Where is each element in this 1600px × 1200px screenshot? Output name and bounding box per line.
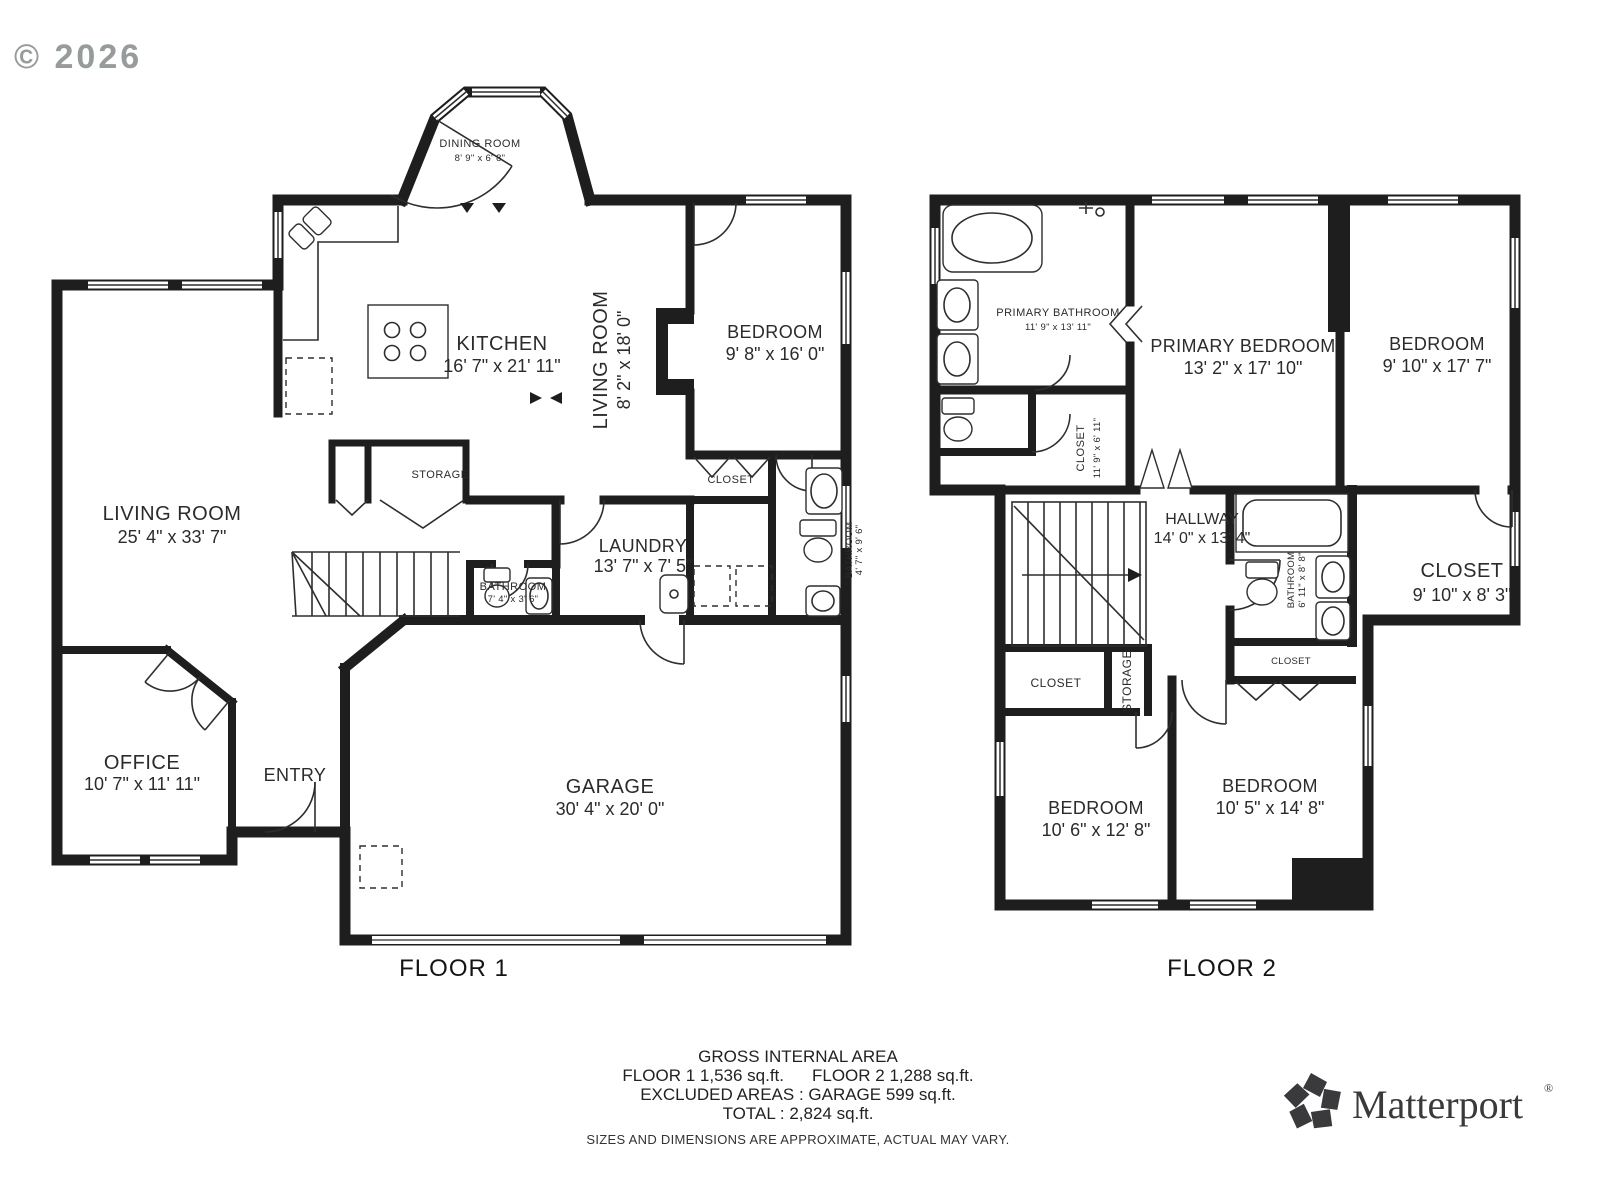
room-dims-garage: 30' 4" x 20' 0" xyxy=(556,799,665,819)
room-label-closet-small: CLOSET xyxy=(1271,656,1311,667)
room-label-closet: CLOSET xyxy=(707,474,754,486)
copyright-text: © 2026 xyxy=(14,38,142,76)
floor2-plan: PRIMARY BATHROOM 11' 9" x 13' 11" PRIMAR… xyxy=(935,200,1515,905)
room-label-living: LIVING ROOM xyxy=(103,503,242,525)
toilet-icon xyxy=(1247,579,1277,605)
kitchen-island xyxy=(368,305,448,378)
room-label-closet-primary: CLOSET xyxy=(1075,424,1087,471)
total-area: TOTAL : 2,824 sq.ft. xyxy=(723,1104,874,1123)
bathtub-icon xyxy=(1236,494,1348,552)
french-door-icon xyxy=(1168,450,1192,488)
refrigerator-icon xyxy=(286,358,332,414)
floor2-area: FLOOR 2 1,288 sq.ft. xyxy=(812,1066,974,1085)
room-dims-living-small: 8' 2" x 18' 0" xyxy=(614,311,634,410)
room-label-bedroom: BEDROOM xyxy=(727,322,823,342)
room-dims-bedroom: 9' 8" x 16' 0" xyxy=(726,344,825,364)
room-dims-primary-bathroom: 11' 9" x 13' 11" xyxy=(1025,322,1091,333)
matterport-wordmark: Matterport xyxy=(1352,1082,1523,1127)
kitchen-sink-icon xyxy=(287,205,332,250)
room-label-entry: ENTRY xyxy=(264,765,327,785)
room-label-garage: GARAGE xyxy=(566,776,655,798)
floor2-caption: FLOOR 2 xyxy=(1167,955,1277,982)
room-dims-living: 25' 4" x 33' 7" xyxy=(118,527,227,547)
room-dims-closet-primary: 11' 9" x 6' 11" xyxy=(1092,418,1103,478)
floor1-plan: DINING ROOM 8' 9" x 6' 8" KITCHEN 16' 7"… xyxy=(52,92,865,940)
room-dims-bedroom-right: 9' 10" x 17' 7" xyxy=(1383,356,1492,376)
floor1-area: FLOOR 1 1,536 sq.ft. xyxy=(622,1066,784,1085)
room-dims-bathroom2: 6' 11" x 8' 8" xyxy=(1297,552,1308,608)
room-label-hallway: HALLWAY xyxy=(1165,511,1239,528)
floor1-fixtures xyxy=(283,205,842,888)
room-dims-kitchen: 16' 7" x 21' 11" xyxy=(443,356,560,376)
room-dims-bedroom-left: 10' 6" x 12' 8" xyxy=(1042,820,1151,840)
toilet-icon xyxy=(944,417,972,441)
excluded-areas: EXCLUDED AREAS : GARAGE 599 sq.ft. xyxy=(640,1085,956,1104)
room-label-primary-bedroom: PRIMARY BEDROOM xyxy=(1150,336,1335,356)
room-dims-laundry: 13' 7" x 7' 5" xyxy=(594,556,693,576)
room-label-bathroom2: BATHROOM xyxy=(1286,552,1297,609)
room-dims-closet-right: 9' 10" x 8' 3" xyxy=(1413,585,1512,605)
room-label-storage: STORAGE xyxy=(411,469,468,481)
room-label-kitchen: KITCHEN xyxy=(456,333,547,355)
room-label-living-small: LIVING ROOM xyxy=(590,291,612,430)
floorplan-page: DINING ROOM 8' 9" x 6' 8" KITCHEN 16' 7"… xyxy=(0,0,1600,1200)
room-label-office: OFFICE xyxy=(104,752,180,774)
room-dims-primary-bedroom: 13' 2" x 17' 10" xyxy=(1184,358,1303,378)
utility-sink-icon xyxy=(660,575,688,613)
room-label-bedroom-right: BEDROOM xyxy=(1389,334,1485,354)
room-dims-bathroom-right: 4' 7" x 9' 6" xyxy=(854,525,865,576)
room-label-bedroom-left: BEDROOM xyxy=(1048,798,1144,818)
floorplan-canvas: DINING ROOM 8' 9" x 6' 8" KITCHEN 16' 7"… xyxy=(0,0,1600,1200)
area-summary: GROSS INTERNAL AREA FLOOR 1 1,536 sq.ft.… xyxy=(586,1047,1009,1147)
matterport-logo: Matterport ® xyxy=(1281,1073,1553,1135)
room-dims-hallway: 14' 0" x 13' 4" xyxy=(1154,530,1251,547)
bathtub-icon xyxy=(943,205,1042,272)
room-dims-dining: 8' 9" x 6' 8" xyxy=(455,153,506,164)
gross-area-title: GROSS INTERNAL AREA xyxy=(698,1047,898,1066)
room-label-storage2: STORAGE xyxy=(1120,650,1134,712)
room-label-laundry: LAUNDRY xyxy=(599,536,688,556)
floor2-stairs xyxy=(1012,502,1146,646)
room-dims-bedroom-bottom: 10' 5" x 14' 8" xyxy=(1216,798,1325,818)
floor1-labels: DINING ROOM 8' 9" x 6' 8" KITCHEN 16' 7"… xyxy=(84,138,865,819)
registered-mark: ® xyxy=(1544,1081,1553,1095)
room-label-dining: DINING ROOM xyxy=(439,138,520,150)
disclaimer: SIZES AND DIMENSIONS ARE APPROXIMATE, AC… xyxy=(586,1132,1009,1147)
floor1-caption: FLOOR 1 xyxy=(399,955,509,982)
room-label-closet-right: CLOSET xyxy=(1420,560,1503,582)
room-label-bedroom-bottom: BEDROOM xyxy=(1222,776,1318,796)
room-dims-office: 10' 7" x 11' 11" xyxy=(84,774,200,794)
room-dims-bathroom-small: 7' 4" x 3' 6" xyxy=(488,594,539,605)
floor1-stairs xyxy=(292,552,460,616)
room-label-closet-hall: CLOSET xyxy=(1030,676,1081,690)
water-heater-icon xyxy=(360,846,402,888)
room-label-primary-bathroom: PRIMARY BATHROOM xyxy=(996,307,1120,319)
toilet-icon xyxy=(804,538,832,562)
room-label-bathroom-small: BATHROOM xyxy=(480,581,547,593)
matterport-mark-icon xyxy=(1281,1073,1345,1135)
french-door-icon xyxy=(1140,450,1164,488)
